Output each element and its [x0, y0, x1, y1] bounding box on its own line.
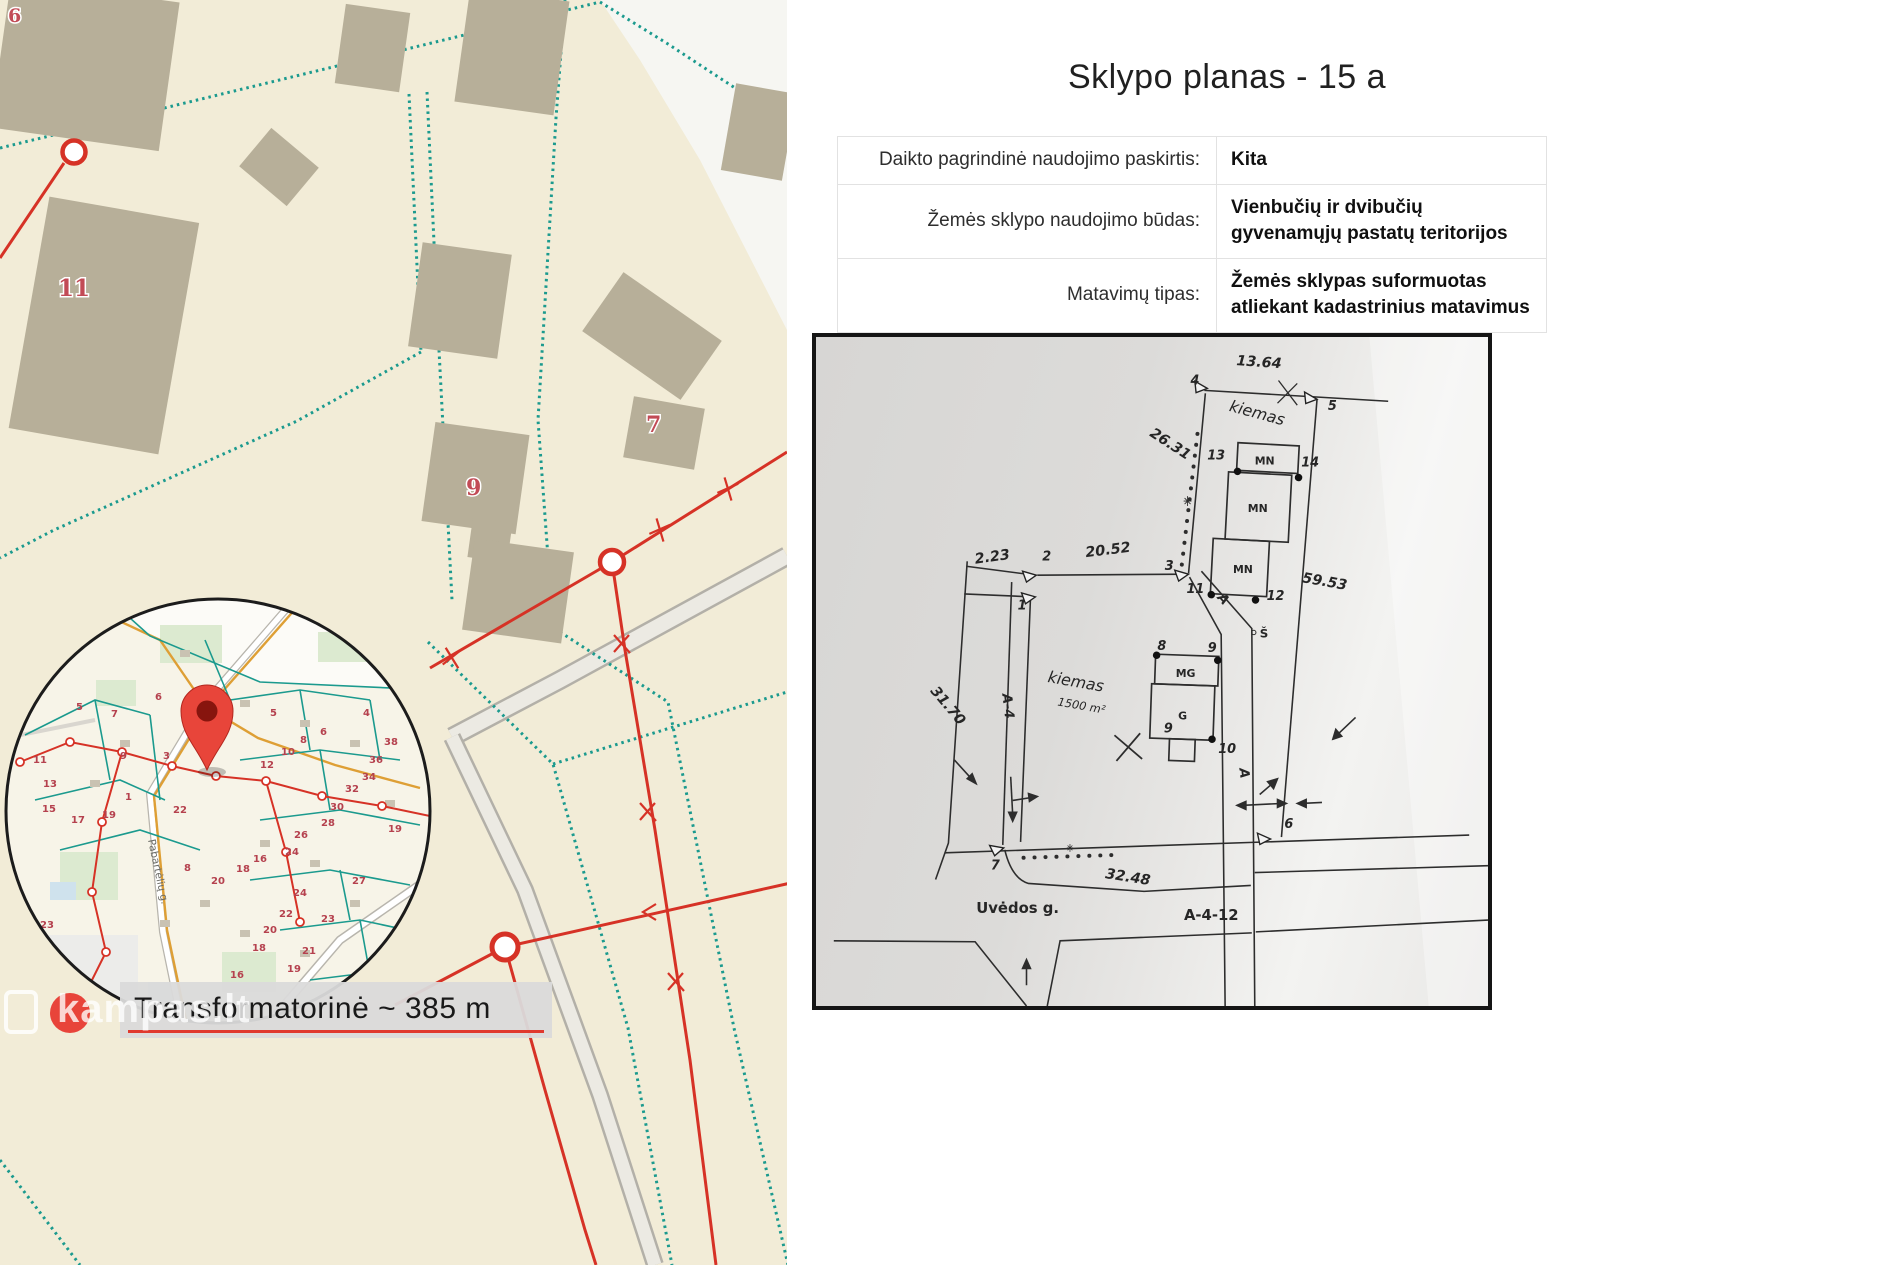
inset-parcel-number: 11: [33, 755, 47, 766]
area-label: kiemas: [1227, 396, 1287, 429]
inset-parcel-number: 27: [352, 876, 366, 887]
inset-parcel-number: 30: [330, 802, 344, 813]
inset-parcel-number: 36: [369, 755, 383, 766]
point-number: 6: [1284, 817, 1293, 832]
point-number: 9: [1164, 721, 1173, 736]
building-label: MG: [1176, 667, 1196, 680]
table-row: Daikto pagrindinė naudojimo paskirtis: K…: [838, 137, 1547, 185]
inset-parcel-number: 12: [260, 760, 274, 771]
inset-parcel-number: 24: [293, 888, 307, 899]
point-number: 11: [1187, 582, 1205, 597]
point-number: 12: [1267, 589, 1285, 604]
inset-parcel-number: 5: [270, 708, 277, 719]
parcel-number: 6: [8, 5, 21, 27]
dimension: 20.52: [1085, 540, 1132, 561]
inset-parcel-number: 22: [279, 909, 293, 920]
building-label: MN: [1255, 454, 1275, 467]
site-plan-drawing: 13.64 26.31 20.52 2.23 31.70 59.53 32.48…: [816, 337, 1488, 1006]
building-label: MN: [1233, 563, 1253, 576]
row-value: Vienbučių ir dvibučių gyvenamųjų pastatų…: [1217, 184, 1547, 258]
table-row: Matavimų tipas: Žemės sklypas suformuota…: [838, 258, 1547, 332]
building-label: MN: [1248, 502, 1268, 515]
inset-parcel-number: 6: [155, 692, 162, 703]
dimension: 32.48: [1104, 866, 1151, 889]
inset-parcel-number: 20: [211, 876, 225, 887]
inset-parcel-number: 5: [76, 702, 83, 713]
listing-image: 6 11 9 7: [0, 0, 1900, 1265]
parcel-number: 11: [58, 275, 90, 302]
point-number: 3: [1165, 559, 1174, 574]
details-panel: Sklypo planas - 15 a Daikto pagrindinė n…: [787, 0, 1900, 1265]
inset-parcel-number: 22: [173, 805, 187, 816]
point-number: 5: [1328, 399, 1337, 414]
cadastral-map: 6 11 9 7: [0, 0, 787, 1265]
road-label: A: [1213, 590, 1232, 608]
plan-labels: 13.64 26.31 20.52 2.23 31.70 59.53 32.48…: [927, 353, 1348, 924]
inset-parcel-number: 28: [321, 818, 335, 829]
row-label: Žemės sklypo naudojimo būdas:: [838, 184, 1217, 258]
page-title: Sklypo planas - 15 a: [847, 58, 1607, 97]
row-label: Matavimų tipas:: [838, 258, 1217, 332]
inset-parcel-number: 21: [302, 946, 316, 957]
inset-parcel-number: 26: [294, 830, 308, 841]
dimension: 31.70: [927, 683, 968, 728]
row-label: Daikto pagrindinė naudojimo paskirtis:: [838, 137, 1217, 185]
inset-parcel-number: 6: [320, 727, 327, 738]
inset-parcel-number: 32: [345, 784, 359, 795]
road-label: A: [1235, 766, 1251, 779]
point-number: 4: [1189, 373, 1199, 388]
inset-parcel-number: 38: [384, 737, 398, 748]
watermark-text: kampas.lt: [57, 987, 251, 1032]
inset-parcel-number: 20: [263, 925, 277, 936]
building-label: G: [1178, 709, 1187, 722]
inset-parcel-number: 8: [184, 863, 191, 874]
inset-parcel-number: 4: [363, 708, 370, 719]
inset-parcel-number: 23: [321, 914, 335, 925]
inset-parcel-number: 18: [236, 864, 250, 875]
inset-parcel-number: 15: [42, 804, 56, 815]
survey-point-markers: [990, 381, 1318, 856]
site-plan: 13.64 26.31 20.52 2.23 31.70 59.53 32.48…: [812, 333, 1492, 1010]
plan-arrows: [954, 717, 1355, 985]
dimension: 26.31: [1147, 425, 1194, 463]
inset-parcel-number: 19: [287, 964, 301, 975]
table-row: Žemės sklypo naudojimo būdas: Vienbučių …: [838, 184, 1547, 258]
dimension: 59.53: [1301, 570, 1348, 594]
inset-parcel-number: 16: [253, 854, 267, 865]
power-node: [492, 934, 518, 960]
inset-parcel-number: 3: [163, 751, 170, 762]
watermark: kampas.lt: [0, 975, 340, 1055]
property-table: Daikto pagrindinė naudojimo paskirtis: K…: [837, 136, 1547, 333]
point-number: 7: [991, 859, 1000, 874]
parcel-number: 9: [466, 475, 481, 501]
point-number: 1: [1018, 599, 1027, 614]
kampas-frame-icon: [4, 990, 38, 1034]
area-size: 1500 m²: [1057, 695, 1107, 717]
row-value: Žemės sklypas suformuotas atliekant kada…: [1217, 258, 1547, 332]
power-node: [600, 550, 624, 574]
inset-parcel-number: 13: [43, 779, 57, 790]
inset-parcel-number: 34: [362, 772, 376, 783]
inset-parcel-number: 9: [120, 751, 127, 762]
point-number: 13: [1207, 449, 1225, 464]
parcel-number: 7: [646, 412, 661, 438]
area-label: kiemas: [1046, 667, 1105, 696]
inset-parcel-number: 10: [281, 747, 295, 758]
inset-parcel-number: 17: [71, 815, 85, 826]
inset-parcel-number: 19: [388, 824, 402, 835]
inset-parcel-number: 18: [252, 943, 266, 954]
dotted-boundary: [1024, 855, 1122, 858]
street-label: Uvėdos g.: [976, 900, 1059, 917]
road-label: A-4-12: [1184, 907, 1239, 924]
point-number: 8: [1157, 639, 1166, 654]
dimension: 13.64: [1236, 353, 1282, 372]
inset-parcel-number: 1: [125, 792, 132, 803]
inset-parcel-number: 7: [111, 709, 118, 720]
row-value: Kita: [1217, 137, 1547, 185]
point-number: 10: [1218, 742, 1236, 757]
north-label: Š: [1260, 625, 1269, 640]
point-number: 2: [1042, 549, 1051, 564]
road-label: A-4: [998, 692, 1016, 720]
inset-parcel-number: 19: [102, 810, 116, 821]
dimension: 2.23: [974, 547, 1011, 568]
power-node: [63, 141, 86, 164]
inset-parcel-number: 8: [300, 735, 307, 746]
point-number: 9: [1208, 641, 1217, 656]
point-number: 14: [1301, 455, 1319, 470]
inset-parcel-number: 24: [285, 847, 299, 858]
building-corner-points: [1150, 651, 1222, 743]
